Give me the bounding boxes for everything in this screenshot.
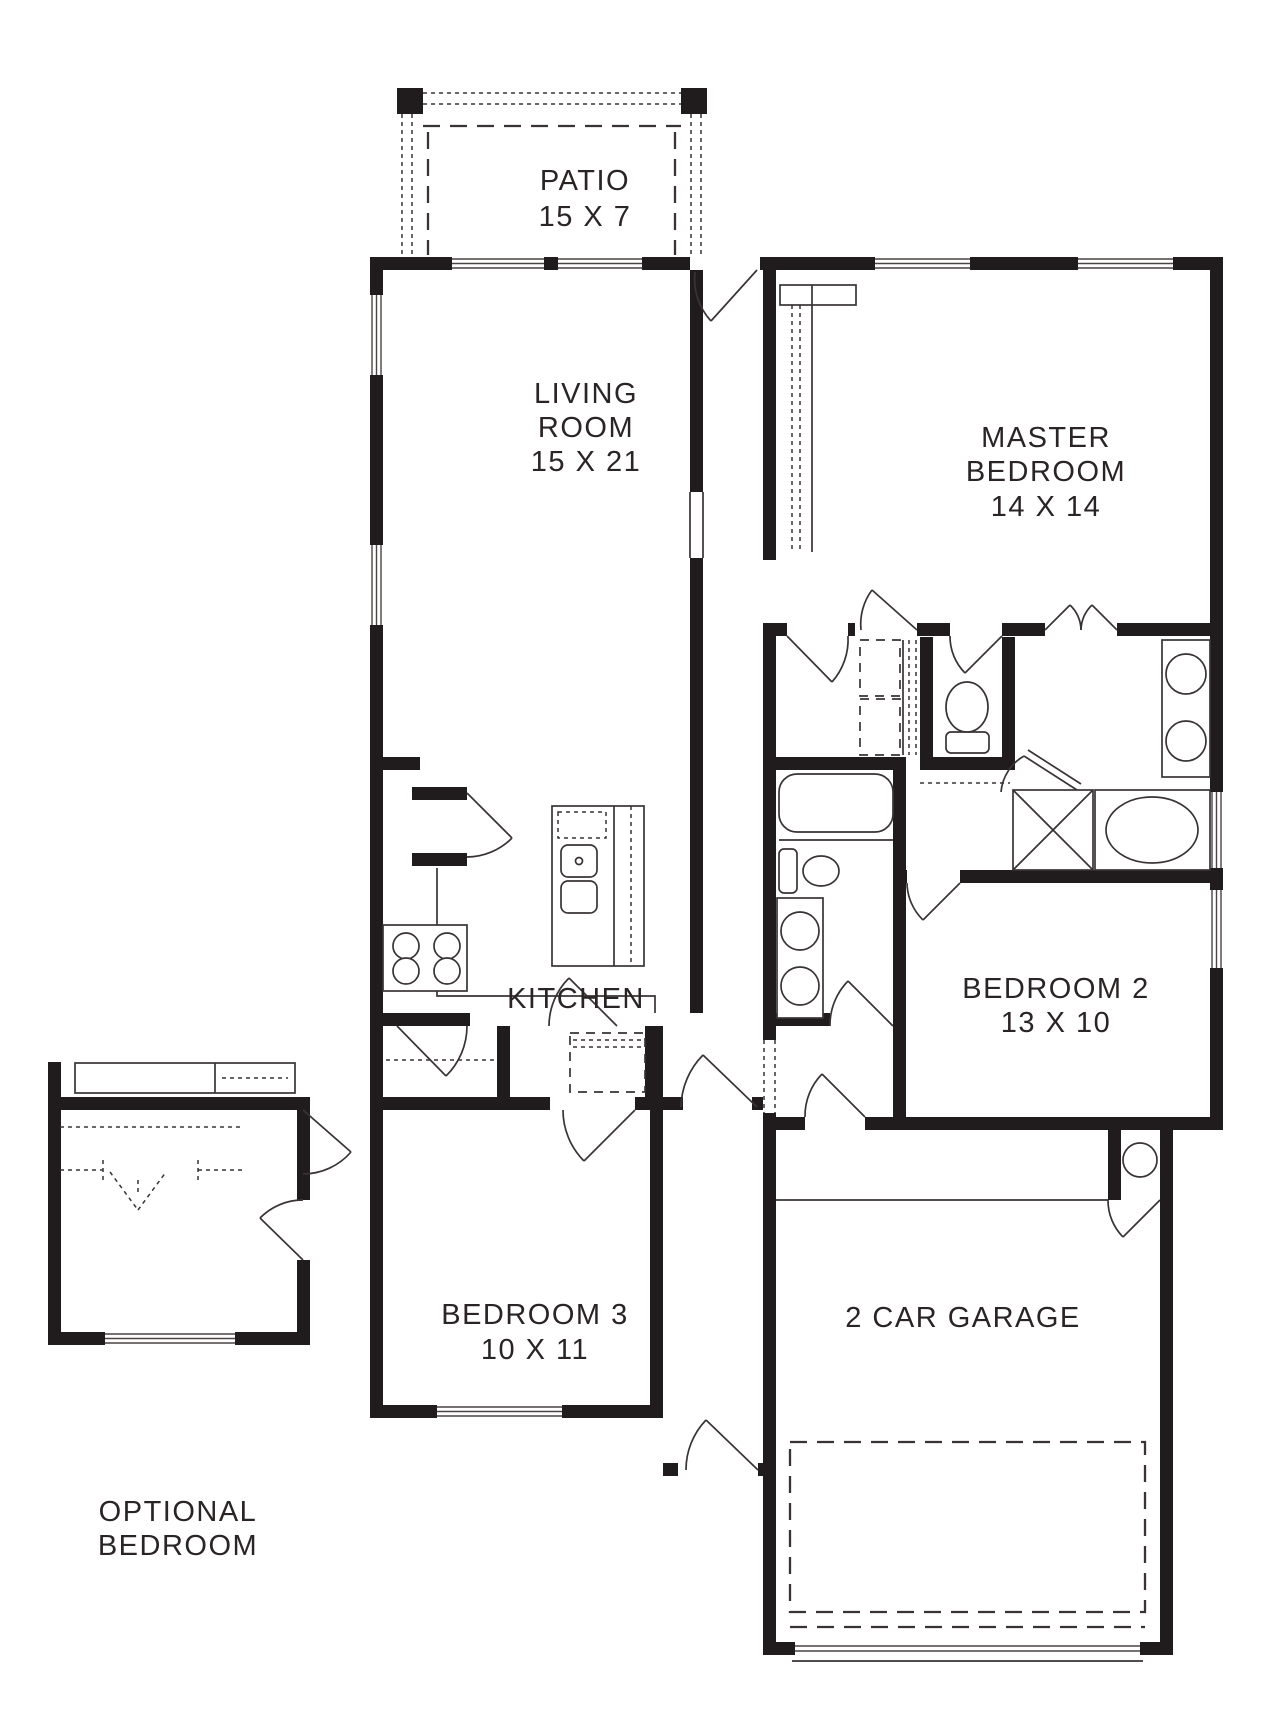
bedroom-3: BEDROOM 3 10 X 11 <box>441 1299 629 1366</box>
master-bedroom-label2: BEDROOM <box>966 456 1126 488</box>
bedroom3-closet-door <box>397 1026 467 1076</box>
vanity-sink <box>1166 654 1206 694</box>
living-hall-opening <box>690 492 703 558</box>
closet-shelves <box>860 640 900 696</box>
window <box>1078 257 1173 270</box>
window <box>370 545 383 625</box>
walk-in-closet-door <box>787 636 848 682</box>
water-heater <box>1123 1143 1157 1177</box>
master-double-vanity <box>1162 640 1210 777</box>
kitchen: KITCHEN <box>383 806 655 1092</box>
bedroom2-door <box>907 883 960 920</box>
master-bedroom: MASTER BEDROOM 14 X 14 <box>780 285 1126 552</box>
walk-in-shower <box>1013 790 1093 870</box>
master-bedroom-label: MASTER <box>981 422 1111 454</box>
optional-bedroom-top-door <box>303 1110 351 1174</box>
living-room-label: LIVING <box>534 378 638 410</box>
master-toilet-door <box>950 636 1002 673</box>
optional-bedroom-walls <box>48 1062 310 1345</box>
optional-bedroom-label: OPTIONAL <box>99 1496 258 1528</box>
master-bathroom <box>920 640 1210 870</box>
window <box>558 257 642 270</box>
vanity-sink <box>1166 721 1206 761</box>
garage-door-opening <box>792 1642 1143 1661</box>
window <box>437 1405 562 1418</box>
optional-bedroom-label2: BEDROOM <box>98 1530 258 1562</box>
vanity-sink <box>781 912 819 950</box>
window <box>370 295 383 375</box>
master-bedroom-dims: 14 X 14 <box>991 491 1101 523</box>
hall-bathroom <box>777 774 893 1018</box>
hall-to-entry-door <box>681 1055 757 1107</box>
bedroom2-dims: 13 X 10 <box>1001 1007 1111 1039</box>
master-bedroom-door <box>861 590 917 630</box>
window <box>452 257 544 270</box>
bedroom3-door <box>563 1110 635 1161</box>
master-toilet <box>946 682 989 753</box>
master-closet-shelf <box>780 285 856 305</box>
interior-walls <box>370 270 1223 1200</box>
washer-dryer-space <box>570 1033 645 1092</box>
walk-in-closet <box>860 640 916 755</box>
hall-toilet <box>779 849 839 893</box>
utility-nook-door <box>1108 1200 1160 1237</box>
floor-plan: PATIO 15 X 7 <box>0 0 1261 1715</box>
garden-tub <box>1095 790 1210 870</box>
optional-bedroom: OPTIONAL BEDROOM <box>48 1062 351 1562</box>
hall-bath-door <box>830 981 893 1026</box>
front-entry-door <box>678 1420 758 1476</box>
living-room-dims: 15 X 21 <box>531 446 641 478</box>
optional-bedroom-side-door <box>260 1200 303 1260</box>
hall-tub <box>779 774 893 832</box>
window <box>1210 792 1223 868</box>
garage: 2 CAR GARAGE <box>776 1143 1157 1661</box>
bedroom-2: BEDROOM 2 13 X 10 <box>962 973 1150 1039</box>
garage-label: 2 CAR GARAGE <box>845 1302 1081 1334</box>
garage-service-door <box>805 1074 865 1117</box>
bedroom3-dims: 10 X 11 <box>481 1334 589 1366</box>
kitchen-label: KITCHEN <box>507 983 645 1015</box>
pantry-door <box>467 793 512 857</box>
hall-vanity <box>777 898 823 1018</box>
patio-dims: 15 X 7 <box>539 201 632 233</box>
bedroom3-label: BEDROOM 3 <box>441 1299 629 1331</box>
window <box>105 1332 235 1345</box>
cased-opening <box>763 1040 776 1113</box>
window <box>875 257 970 270</box>
optional-closet-bifold <box>60 1127 243 1210</box>
porch-cover <box>75 1063 295 1093</box>
kitchen-island <box>552 806 644 966</box>
patio: PATIO 15 X 7 <box>397 88 707 255</box>
master-bath-double-doors <box>1045 605 1117 630</box>
garage-parking-area <box>790 1442 1145 1627</box>
bedroom2-label: BEDROOM 2 <box>962 973 1150 1005</box>
range-stove <box>383 925 467 991</box>
living-room-label2: ROOM <box>538 412 634 444</box>
patio-label: PATIO <box>540 165 630 197</box>
floor-plan-drawing: PATIO 15 X 7 <box>0 0 1261 1715</box>
window <box>1210 890 1223 968</box>
living-room: LIVING ROOM 15 X 21 <box>531 378 641 478</box>
vanity-sink <box>781 967 819 1005</box>
